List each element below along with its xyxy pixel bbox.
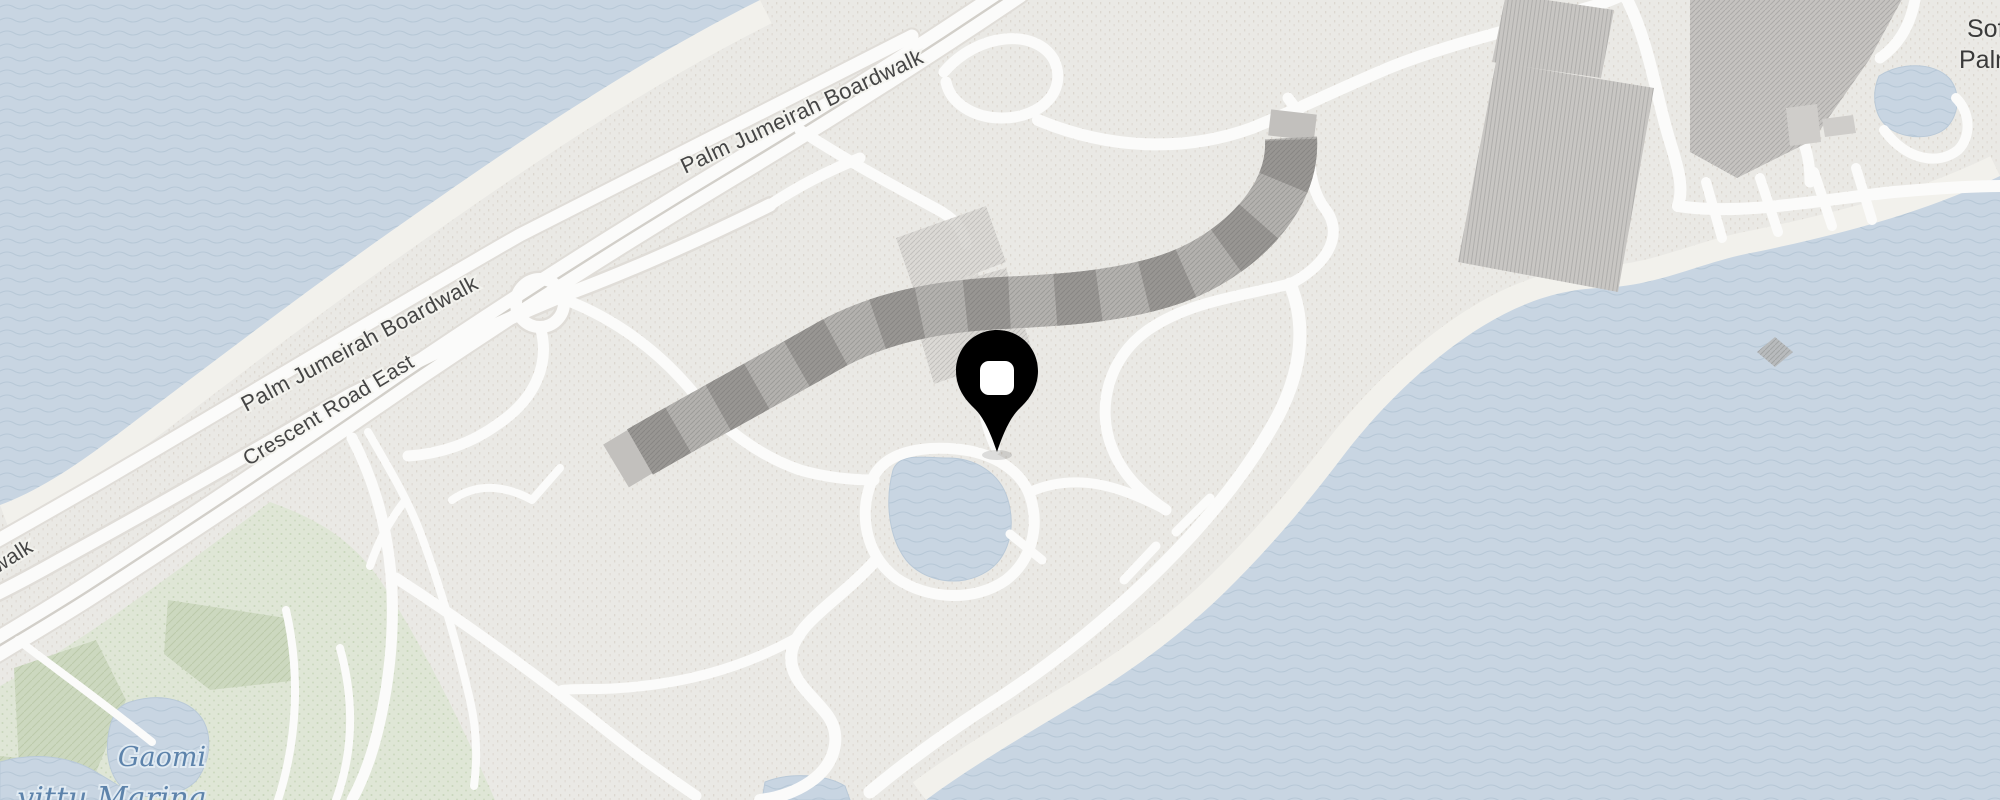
pin-center-dot xyxy=(980,361,1014,395)
water-label-gaomi: Gaomi xyxy=(118,742,206,773)
poi-label-line2: Palm xyxy=(1959,46,2000,74)
map-canvas[interactable]: Palm Jumeirah Boardwalk Palm Jumeirah Bo… xyxy=(0,0,2000,800)
water-label-partial: vittu Marina xyxy=(17,781,206,800)
poi-label-line1: Sof xyxy=(1967,15,2000,43)
map-viewport[interactable]: Palm Jumeirah Boardwalk Palm Jumeirah Bo… xyxy=(0,0,2000,800)
